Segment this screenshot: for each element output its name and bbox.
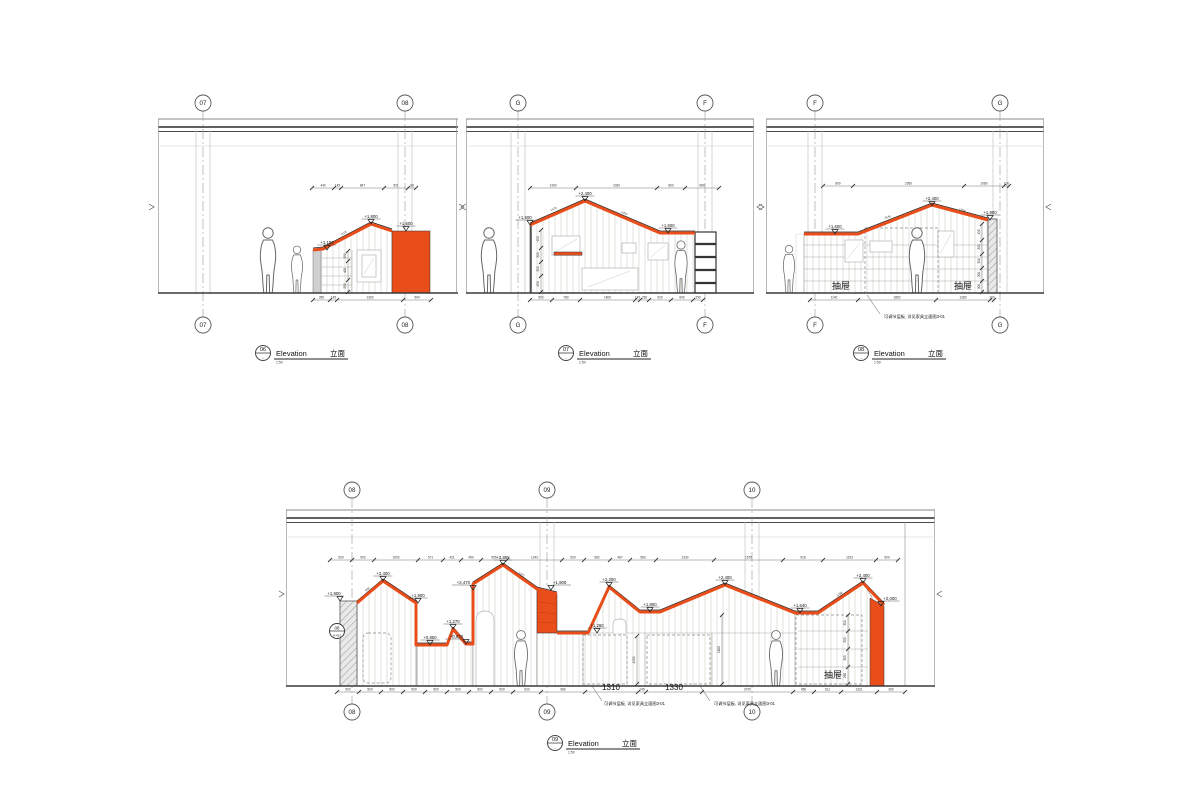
end-panel	[988, 219, 997, 293]
svg-text:300: 300	[843, 620, 847, 626]
drawer-label: 抽屉	[824, 669, 842, 680]
svg-text:+1,500: +1,500	[518, 215, 532, 220]
svg-text:440: 440	[320, 184, 326, 188]
svg-text:250: 250	[343, 253, 347, 259]
svg-text:1330: 1330	[549, 184, 556, 188]
title-label: Elevation	[579, 349, 610, 358]
svg-text:1575: 1575	[745, 556, 752, 560]
svg-text:582: 582	[594, 556, 600, 560]
drawer-label: 抽屉	[832, 280, 850, 291]
svg-text:300: 300	[843, 637, 847, 643]
section-sheet: A-413	[333, 634, 341, 638]
title-label: Elevation	[874, 349, 905, 358]
svg-text:2330: 2330	[613, 184, 620, 188]
grid-label: F	[703, 100, 707, 107]
svg-text:650: 650	[538, 296, 544, 300]
svg-text:594: 594	[414, 296, 420, 300]
svg-text:+1,900: +1,900	[327, 591, 341, 596]
svg-text:583: 583	[640, 556, 646, 560]
svg-text:+2,400: +2,400	[718, 575, 732, 580]
svg-text:980: 980	[699, 184, 705, 188]
svg-text:+1,900: +1,900	[983, 210, 997, 215]
title-scale: 1:50	[276, 361, 283, 365]
grid-label: G	[998, 322, 1003, 329]
svg-text:100: 100	[989, 296, 995, 300]
orange-panel	[870, 598, 884, 686]
svg-text:640: 640	[679, 296, 685, 300]
svg-text:+2,400: +2,400	[925, 196, 939, 201]
svg-text:290: 290	[695, 296, 701, 300]
svg-text:500: 500	[411, 688, 417, 692]
svg-text:500: 500	[433, 688, 439, 692]
section-marker: 08 A-413	[330, 624, 345, 639]
svg-text:500: 500	[477, 688, 483, 692]
grid-label: 09	[544, 487, 551, 494]
svg-text:1393: 1393	[366, 296, 373, 300]
svg-text:+1,900: +1,900	[553, 580, 567, 585]
svg-text:260: 260	[888, 688, 894, 692]
bookshelf	[695, 232, 716, 293]
svg-text:450: 450	[801, 688, 807, 692]
drawer-label: 抽屉	[954, 280, 972, 291]
svg-text:571: 571	[428, 556, 434, 560]
grid-label: 09	[544, 709, 551, 716]
grid-label: F	[813, 100, 817, 107]
title-cn: 立面	[330, 348, 345, 358]
svg-text:500: 500	[389, 688, 395, 692]
svg-text:145: 145	[639, 688, 645, 692]
svg-text:980: 980	[560, 688, 566, 692]
svg-text:620: 620	[524, 688, 530, 692]
title-scale: 1:50	[874, 361, 881, 365]
svg-text:800: 800	[835, 182, 841, 186]
svg-text:350: 350	[319, 296, 325, 300]
svg-text:+2,400: +2,400	[856, 573, 870, 578]
svg-text:1280: 1280	[959, 296, 966, 300]
svg-text:1330: 1330	[681, 556, 688, 560]
title-number: 07	[563, 347, 569, 353]
svg-text:98: 98	[410, 184, 414, 188]
svg-text:500: 500	[367, 688, 373, 692]
svg-text:421: 421	[449, 556, 455, 560]
title-cn: 立面	[928, 348, 943, 358]
svg-text:595: 595	[491, 556, 497, 560]
svg-text:300: 300	[977, 258, 981, 264]
svg-text:260: 260	[642, 296, 648, 300]
grid-label: 08	[402, 100, 409, 107]
svg-text:501: 501	[393, 184, 399, 188]
svg-text:300: 300	[977, 244, 981, 250]
svg-text:+2,300: +2,300	[602, 577, 616, 582]
svg-text:+1,600: +1,600	[399, 221, 413, 226]
grid-label: 08	[402, 322, 409, 329]
svg-text:450: 450	[536, 281, 540, 287]
svg-text:300: 300	[536, 266, 540, 272]
svg-text:400: 400	[343, 268, 347, 274]
grid-label: 08	[349, 487, 356, 494]
grid-label: 10	[749, 487, 756, 494]
svg-text:+2,000: +2,000	[883, 596, 897, 601]
note-text: 可调节层板, 详见家具立面图3-01	[714, 700, 776, 707]
svg-text:+1,600: +1,600	[828, 224, 842, 229]
svg-text:+2,400: +2,400	[578, 191, 592, 196]
svg-text:145: 145	[635, 296, 641, 300]
svg-text:+0,870: +0,870	[450, 634, 464, 639]
elevation-sheet-svg: 07 08 07 08 +1,100 +1,800 +1,6	[0, 0, 1200, 800]
svg-text:1193: 1193	[846, 556, 853, 560]
note-text: 可调节层板, 详见家具立面图3-01	[604, 700, 666, 707]
svg-text:1321: 1321	[855, 688, 862, 692]
orange-shelf	[554, 252, 582, 255]
section-number: 08	[335, 626, 340, 631]
svg-text:260: 260	[843, 673, 847, 679]
svg-text:500: 500	[338, 556, 344, 560]
svg-text:1000: 1000	[392, 556, 399, 560]
svg-text:2950: 2950	[905, 182, 912, 186]
svg-text:300: 300	[843, 655, 847, 661]
grid-label: G	[998, 100, 1003, 107]
grid-label: 07	[200, 322, 207, 329]
orange-panel	[537, 589, 557, 633]
svg-text:+1,800: +1,800	[364, 214, 378, 219]
svg-text:1600: 1600	[717, 646, 721, 653]
title-number: 06	[260, 347, 266, 353]
grid-label: 08	[349, 709, 356, 716]
grid-label: F	[703, 322, 707, 329]
svg-text:450: 450	[536, 236, 540, 242]
svg-text:450: 450	[977, 229, 981, 235]
grid-label: 10	[749, 709, 756, 716]
svg-text:467: 467	[617, 556, 623, 560]
svg-text:+0,850: +0,850	[423, 635, 437, 640]
svg-text:+1,100: +1,100	[320, 240, 334, 245]
svg-text:500: 500	[455, 688, 461, 692]
svg-text:+1,640: +1,640	[793, 603, 807, 608]
svg-text:500: 500	[345, 688, 351, 692]
svg-text:100: 100	[1004, 182, 1010, 186]
svg-text:145: 145	[331, 296, 337, 300]
svg-text:+1,600: +1,600	[661, 223, 675, 228]
title-label: Elevation	[568, 739, 599, 748]
big-dim-1330: 1330	[665, 683, 683, 692]
note-text: 可调节层板, 详见家具立面图3-01	[884, 313, 946, 320]
window	[845, 240, 863, 262]
drawing-sheet: 07 08 07 08 +1,100 +1,800 +1,6	[0, 0, 1200, 800]
grid-label: G	[516, 322, 521, 329]
title-number: 09	[552, 737, 558, 743]
svg-text:1852: 1852	[893, 296, 900, 300]
svg-text:+1,270: +1,270	[446, 619, 460, 624]
big-dim-1310: 1310	[602, 683, 620, 692]
svg-text:620: 620	[657, 296, 663, 300]
grid-label: F	[813, 322, 817, 329]
svg-text:1140: 1140	[831, 296, 838, 300]
svg-text:500: 500	[360, 556, 366, 560]
svg-text:+1,260: +1,260	[590, 623, 604, 628]
arch-niche	[613, 619, 626, 633]
title-label: Elevation	[276, 349, 307, 358]
svg-text:250: 250	[343, 283, 347, 289]
title-cn: 立面	[622, 738, 637, 748]
svg-text:1243: 1243	[531, 556, 538, 560]
svg-text:+2,470: +2,470	[457, 580, 471, 585]
svg-text:+1,900: +1,900	[411, 593, 425, 598]
svg-text:780: 780	[563, 296, 569, 300]
svg-text:300: 300	[536, 252, 540, 258]
title-number: 08	[858, 347, 864, 353]
svg-text:847: 847	[360, 184, 366, 188]
svg-text:611: 611	[825, 688, 830, 692]
svg-text:500: 500	[884, 556, 890, 560]
grid-label: 07	[200, 100, 207, 107]
svg-text:2070: 2070	[744, 688, 751, 692]
svg-text:450: 450	[468, 556, 474, 560]
svg-text:1600: 1600	[604, 296, 611, 300]
svg-text:1200: 1200	[632, 656, 636, 663]
svg-text:1080: 1080	[980, 182, 987, 186]
svg-text:500: 500	[570, 556, 576, 560]
svg-text:300: 300	[977, 284, 981, 290]
title-scale: 1:50	[568, 751, 575, 755]
end-panel	[340, 601, 357, 686]
svg-text:300: 300	[977, 272, 981, 278]
svg-text:916: 916	[800, 556, 806, 560]
arch-window	[476, 611, 494, 686]
orange-panel	[392, 231, 430, 293]
title-cn: 立面	[633, 348, 648, 358]
title-scale: 1:50	[579, 361, 586, 365]
svg-text:800: 800	[668, 184, 674, 188]
svg-text:+1,800: +1,800	[643, 602, 657, 607]
svg-text:145: 145	[335, 184, 341, 188]
grid-label: G	[516, 100, 521, 107]
svg-text:+2,400: +2,400	[376, 571, 390, 576]
svg-text:500: 500	[499, 688, 505, 692]
